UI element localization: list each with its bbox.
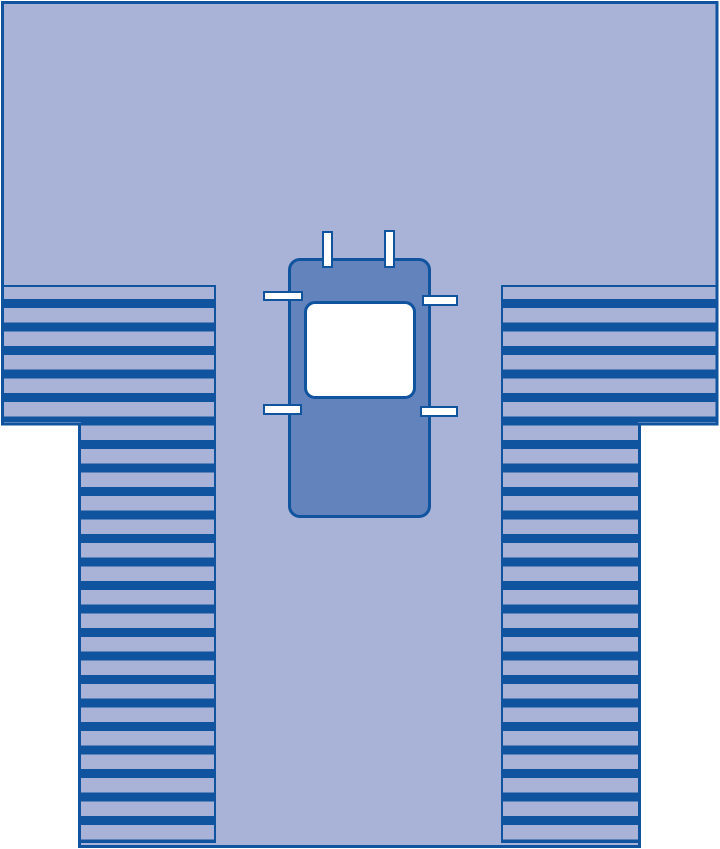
adhesive-tab-left-upper: [263, 291, 303, 301]
adhesive-tab-right-upper: [422, 295, 458, 306]
adhesive-tab-top-right: [384, 230, 395, 268]
surgical-drape-illustration: [0, 0, 720, 849]
adhesive-tab-right-lower: [420, 406, 458, 417]
adhesive-tab-top-left: [322, 231, 333, 268]
fenestration-window: [304, 301, 416, 399]
adhesive-tab-left-lower: [263, 404, 302, 415]
